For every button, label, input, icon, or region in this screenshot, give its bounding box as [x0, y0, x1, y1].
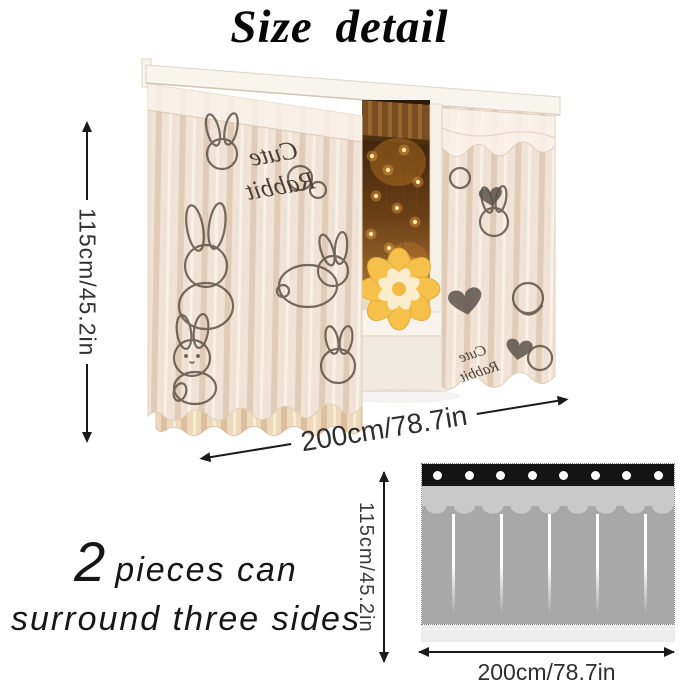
curtain-base-strip	[421, 625, 675, 642]
diagram-width-measure: 200cm/78.7in	[419, 651, 674, 685]
valance-band	[422, 486, 674, 506]
grommet-strip	[422, 464, 674, 486]
fold-highlight	[548, 514, 551, 614]
vertical-double-arrow-icon	[383, 472, 385, 662]
grommet-icon	[465, 471, 474, 480]
arrow-down-icon	[86, 364, 88, 434]
grommet-icon	[622, 471, 631, 480]
photo-height-measure: 115cm/45.2in	[72, 130, 102, 434]
curtain-left: Cute Rabbit	[148, 84, 362, 421]
diagram-height-measure: 115cm/45.2in	[354, 472, 385, 662]
curtain-right: Cute Rabbit	[442, 106, 555, 389]
size-detail-image: Size detail	[0, 0, 679, 685]
grommet-icon	[559, 471, 568, 480]
caption-count: 2	[74, 534, 105, 590]
fold-highlight	[644, 514, 647, 614]
caption: 2 pieces can surround three sides	[10, 534, 362, 639]
photo-height-label: 115cm/45.2in	[74, 208, 101, 356]
grommet-icon	[433, 471, 442, 480]
caption-line1-text: pieces can	[115, 551, 298, 590]
caption-line-1: 2 pieces can	[10, 534, 362, 590]
diagram-width-label: 200cm/78.7in	[419, 659, 674, 685]
curtain-body	[422, 506, 674, 624]
curtain-diagram	[421, 463, 675, 642]
arrow-left-icon	[208, 443, 291, 458]
page-title: Size detail	[0, 0, 679, 54]
curtain-ruffle	[442, 108, 555, 157]
grommet-icon	[528, 471, 537, 480]
flower-pillow-icon	[358, 248, 440, 330]
caption-line-2: surround three sides	[10, 600, 362, 639]
grommet-icon	[496, 471, 505, 480]
fold-highlight	[596, 514, 599, 614]
fold-highlight	[500, 514, 503, 614]
curtain-panel	[421, 463, 675, 625]
grommet-icon	[654, 471, 663, 480]
horizontal-double-arrow-icon	[419, 651, 674, 653]
arrow-right-icon	[477, 400, 560, 415]
arrow-up-icon	[86, 130, 88, 200]
diagram-height-label: 115cm/45.2in	[354, 472, 377, 662]
fold-highlight	[452, 514, 455, 614]
grommet-icon	[591, 471, 600, 480]
